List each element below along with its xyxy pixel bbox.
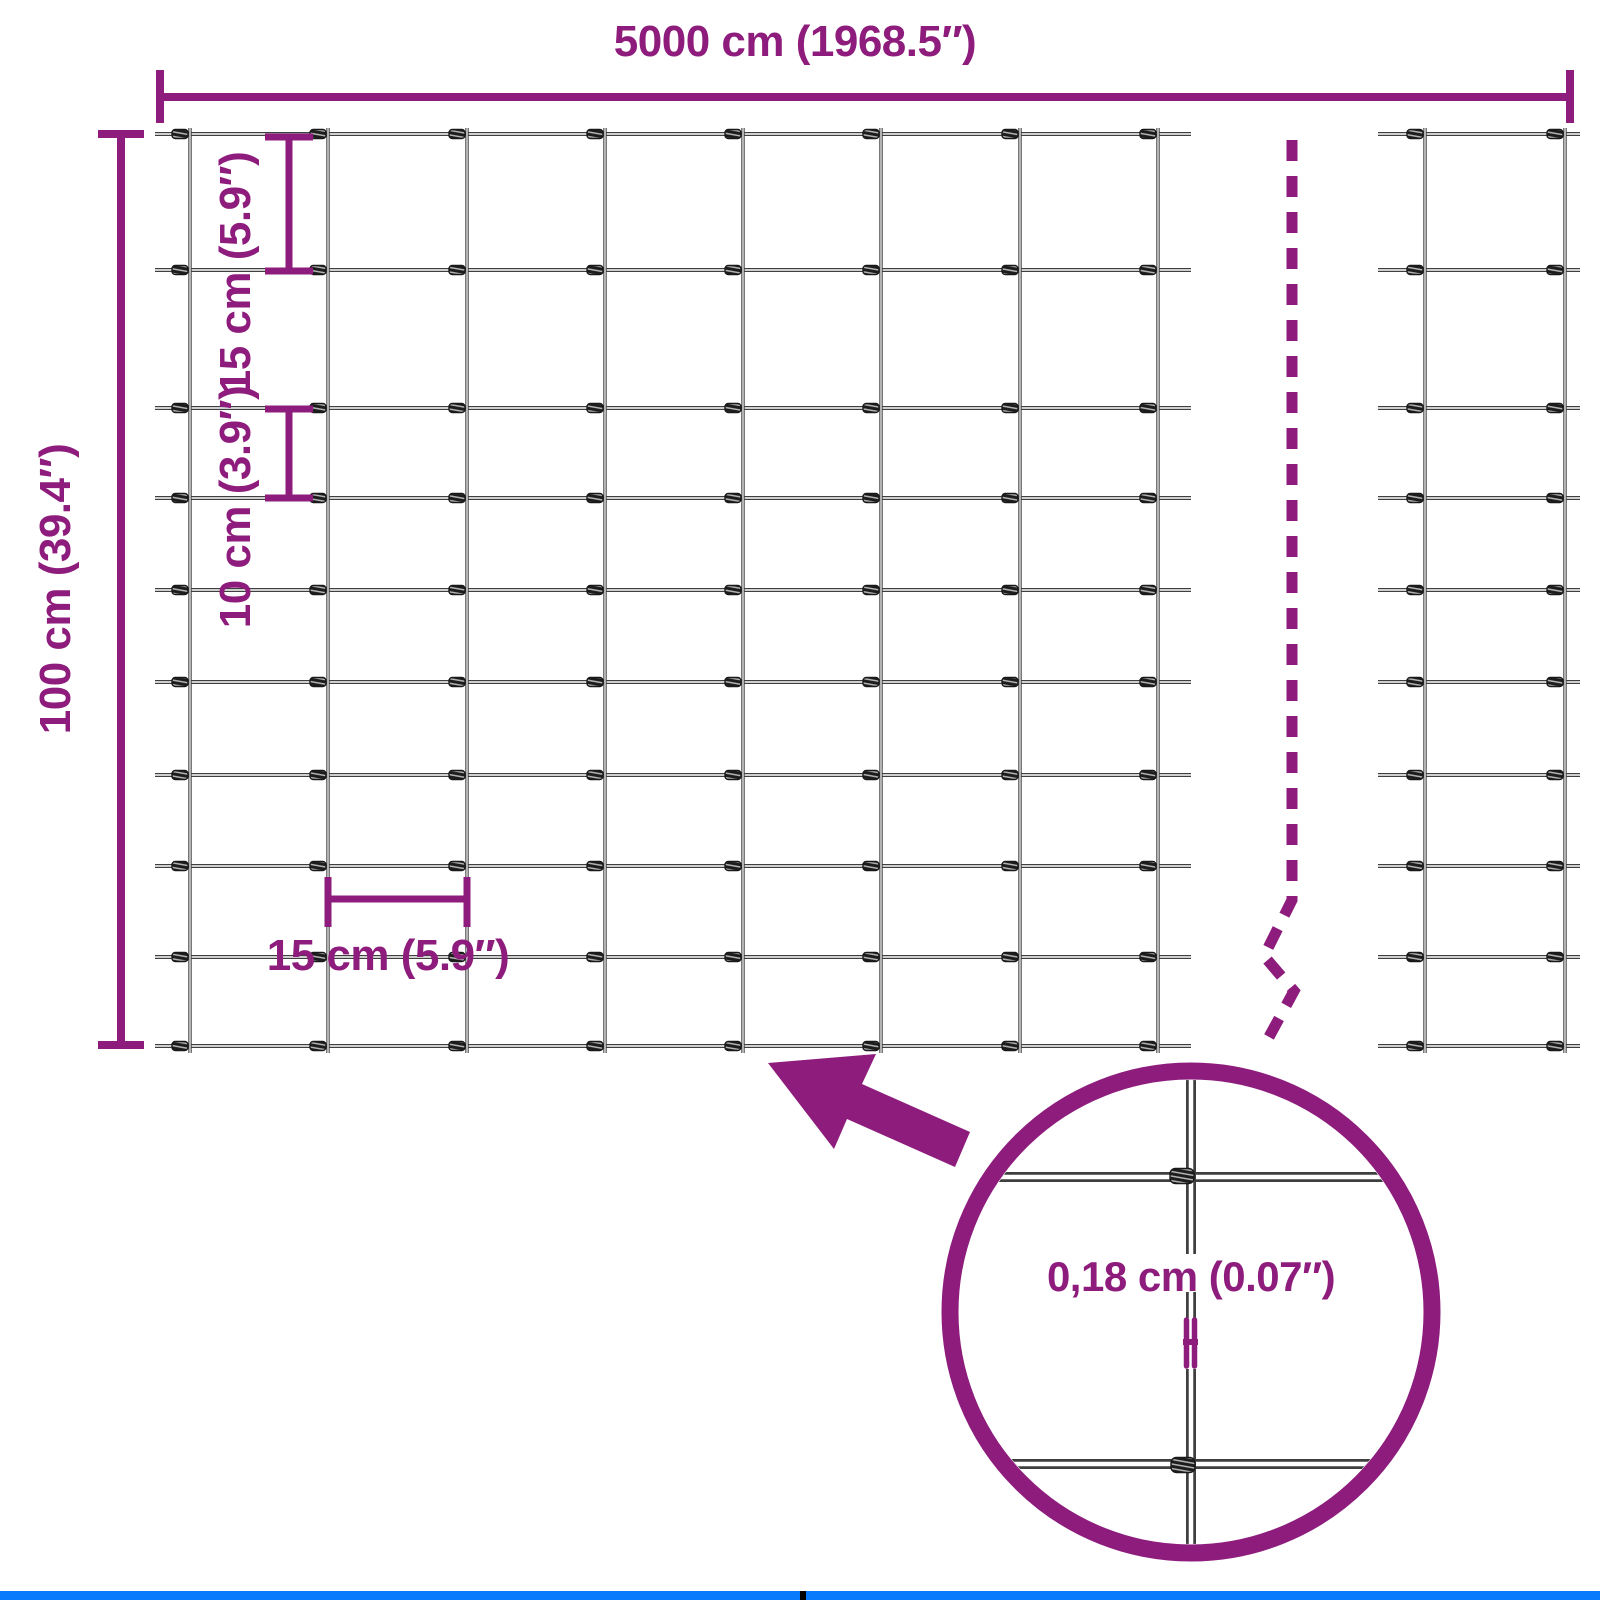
break-line — [1263, 140, 1294, 1048]
mesh-main — [155, 128, 1191, 1053]
dimension-line-total-width — [160, 70, 1570, 123]
label-wire-diameter: 0,18 cm (0.07″) — [1047, 1256, 1335, 1298]
mesh-right-section — [1378, 128, 1580, 1053]
bracket-cell-width — [328, 877, 467, 927]
label-total-width: 5000 cm (1968.5″) — [614, 20, 976, 64]
dimension-line-total-height — [98, 134, 144, 1045]
label-cell-width: 15 cm (5.9″) — [267, 934, 510, 978]
bracket-cell-height-mid — [265, 409, 313, 498]
label-cell-height-top: 15 cm (5.9″) — [214, 152, 258, 395]
bracket-cell-height-top — [265, 137, 313, 271]
label-total-height: 100 cm (39.4″) — [34, 444, 78, 734]
zoom-arrow-icon — [768, 1054, 970, 1167]
zoom-detail-circle — [950, 1071, 1432, 1553]
fence-dimension-diagram: 5000 cm (1968.5″) 100 cm (39.4″) 15 cm (… — [0, 0, 1600, 1600]
bottom-bar-divider — [800, 1591, 806, 1600]
bottom-bar — [0, 1591, 1600, 1600]
label-cell-height-mid: 10 cm (3.9″) — [214, 386, 258, 629]
